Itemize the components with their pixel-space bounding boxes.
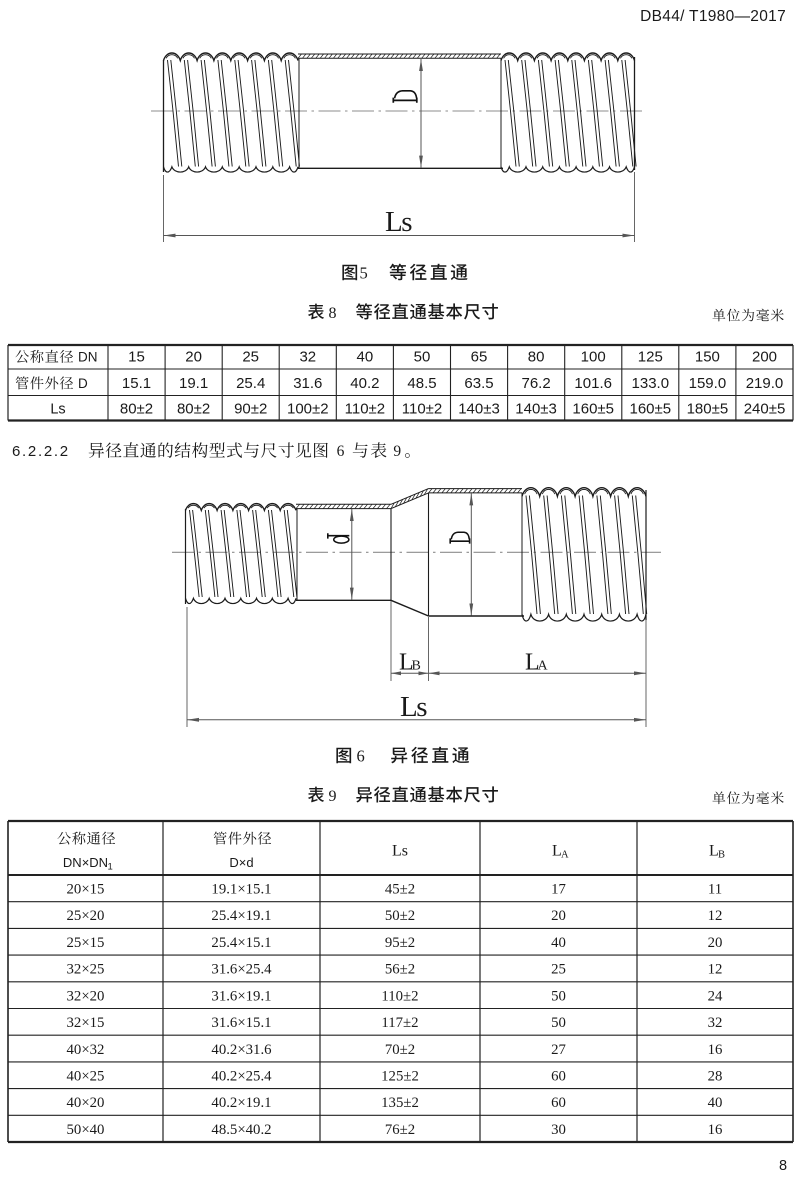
- svg-text:Ls: Ls: [50, 402, 65, 418]
- svg-text:A: A: [561, 850, 569, 861]
- svg-text:19.1: 19.1: [179, 375, 208, 392]
- svg-text:20×15: 20×15: [67, 882, 105, 898]
- svg-text:160±5: 160±5: [572, 401, 614, 418]
- svg-text:50±2: 50±2: [385, 908, 415, 924]
- svg-text:50: 50: [551, 1015, 566, 1031]
- svg-text:90±2: 90±2: [234, 401, 267, 418]
- svg-text:200: 200: [752, 349, 777, 366]
- svg-text:20: 20: [185, 349, 202, 366]
- svg-text:24: 24: [708, 988, 723, 1004]
- svg-text:48.5×40.2: 48.5×40.2: [211, 1122, 271, 1138]
- svg-text:240±5: 240±5: [744, 401, 786, 418]
- svg-text:125: 125: [638, 349, 663, 366]
- svg-text:9: 9: [329, 788, 337, 805]
- svg-text:25×20: 25×20: [67, 908, 105, 924]
- svg-text:B: B: [718, 850, 725, 861]
- svg-text:133.0: 133.0: [632, 375, 670, 392]
- svg-text:80±2: 80±2: [120, 401, 153, 418]
- svg-text:110±2: 110±2: [381, 988, 418, 1004]
- svg-text:12: 12: [708, 908, 723, 924]
- svg-text:6: 6: [357, 747, 365, 766]
- svg-text:140±3: 140±3: [515, 401, 557, 418]
- svg-text:219.0: 219.0: [746, 375, 784, 392]
- svg-text:A: A: [538, 659, 549, 674]
- svg-text:40.2×25.4: 40.2×25.4: [211, 1069, 272, 1085]
- svg-text:25×15: 25×15: [67, 935, 105, 951]
- svg-text:63.5: 63.5: [464, 375, 493, 392]
- svg-text:Ls: Ls: [400, 691, 427, 723]
- svg-text:40.2: 40.2: [350, 375, 379, 392]
- svg-text:6: 6: [337, 443, 345, 460]
- svg-text:Ls: Ls: [392, 843, 408, 860]
- svg-text:25: 25: [242, 349, 259, 366]
- svg-text:17: 17: [551, 882, 566, 898]
- svg-text:8: 8: [779, 1158, 787, 1174]
- svg-text:80: 80: [528, 349, 545, 366]
- svg-text:32: 32: [299, 349, 316, 366]
- svg-text:40: 40: [551, 935, 566, 951]
- svg-text:DN: DN: [78, 350, 98, 365]
- svg-text:48.5: 48.5: [407, 375, 436, 392]
- svg-text:95±2: 95±2: [385, 935, 415, 951]
- svg-text:40: 40: [708, 1095, 723, 1111]
- svg-text:25.4×15.1: 25.4×15.1: [211, 935, 271, 951]
- svg-text:9: 9: [393, 443, 401, 460]
- svg-text:30: 30: [551, 1122, 566, 1138]
- svg-text:110±2: 110±2: [345, 401, 386, 418]
- svg-text:50: 50: [551, 988, 566, 1004]
- svg-text:65: 65: [471, 349, 488, 366]
- svg-text:31.6×15.1: 31.6×15.1: [211, 1015, 271, 1031]
- svg-text:32: 32: [708, 1015, 723, 1031]
- svg-text:40×25: 40×25: [67, 1069, 105, 1085]
- svg-text:D×d: D×d: [229, 855, 253, 870]
- svg-text:Ls: Ls: [385, 206, 412, 238]
- svg-text:28: 28: [708, 1069, 723, 1085]
- svg-text:101.6: 101.6: [574, 375, 612, 392]
- svg-text:15: 15: [128, 349, 145, 366]
- svg-text:140±3: 140±3: [458, 401, 500, 418]
- svg-text:DB44/ T1980—2017: DB44/ T1980—2017: [640, 8, 786, 25]
- svg-text:117±2: 117±2: [381, 1015, 418, 1031]
- svg-text:150: 150: [695, 349, 720, 366]
- svg-text:76.2: 76.2: [521, 375, 550, 392]
- svg-text:50: 50: [414, 349, 431, 366]
- svg-text:12: 12: [708, 962, 723, 978]
- svg-text:160±5: 160±5: [629, 401, 671, 418]
- svg-text:40×32: 40×32: [67, 1042, 105, 1058]
- svg-text:56±2: 56±2: [385, 962, 415, 978]
- svg-text:25: 25: [551, 962, 566, 978]
- svg-text:76±2: 76±2: [385, 1122, 415, 1138]
- svg-text:1: 1: [108, 862, 113, 873]
- svg-text:16: 16: [708, 1122, 723, 1138]
- svg-text:70±2: 70±2: [385, 1042, 415, 1058]
- svg-text:31.6: 31.6: [293, 375, 322, 392]
- svg-text:40×20: 40×20: [67, 1095, 105, 1111]
- svg-text:80±2: 80±2: [177, 401, 210, 418]
- svg-text:32×25: 32×25: [67, 962, 105, 978]
- svg-text:15.1: 15.1: [122, 375, 151, 392]
- svg-text:180±5: 180±5: [687, 401, 729, 418]
- svg-text:32×20: 32×20: [67, 988, 105, 1004]
- svg-text:20: 20: [551, 908, 566, 924]
- svg-text:31.6×19.1: 31.6×19.1: [211, 988, 271, 1004]
- svg-text:100±2: 100±2: [287, 401, 329, 418]
- svg-text:32×15: 32×15: [67, 1015, 105, 1031]
- svg-text:5: 5: [360, 264, 368, 283]
- svg-text:31.6×25.4: 31.6×25.4: [211, 962, 272, 978]
- svg-text:45±2: 45±2: [385, 882, 415, 898]
- svg-text:40.2×31.6: 40.2×31.6: [211, 1042, 271, 1058]
- svg-text:16: 16: [708, 1042, 723, 1058]
- svg-text:40: 40: [357, 349, 374, 366]
- svg-text:110±2: 110±2: [402, 401, 443, 418]
- svg-text:11: 11: [708, 882, 722, 898]
- svg-text:25.4×19.1: 25.4×19.1: [211, 908, 271, 924]
- svg-text:135±2: 135±2: [381, 1095, 419, 1111]
- svg-text:6.2.2.2: 6.2.2.2: [12, 443, 70, 460]
- svg-text:40.2×19.1: 40.2×19.1: [211, 1095, 271, 1111]
- svg-text:159.0: 159.0: [689, 375, 727, 392]
- svg-text:B: B: [412, 659, 421, 674]
- svg-text:20: 20: [708, 935, 723, 951]
- svg-text:60: 60: [551, 1095, 566, 1111]
- svg-text:50×40: 50×40: [67, 1122, 105, 1138]
- svg-text:DN×DN: DN×DN: [63, 855, 108, 870]
- svg-text:19.1×15.1: 19.1×15.1: [211, 882, 271, 898]
- svg-text:D: D: [78, 376, 88, 391]
- svg-text:25.4: 25.4: [236, 375, 265, 392]
- svg-text:8: 8: [329, 305, 337, 322]
- svg-text:100: 100: [581, 349, 606, 366]
- svg-text:60: 60: [551, 1069, 566, 1085]
- svg-text:27: 27: [551, 1042, 566, 1058]
- svg-text:125±2: 125±2: [381, 1069, 419, 1085]
